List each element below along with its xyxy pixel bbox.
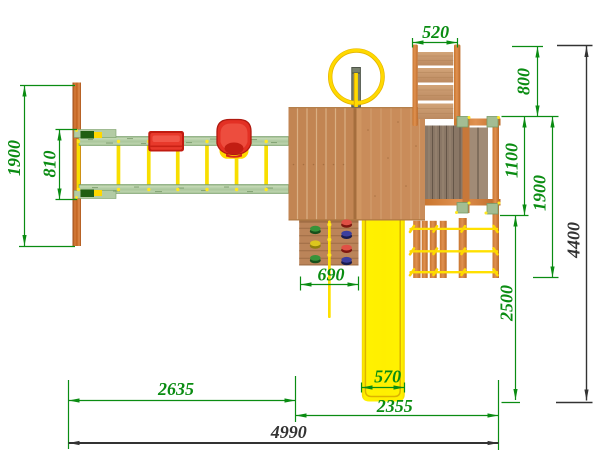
svg-text:800: 800 <box>514 68 534 95</box>
svg-text:1900: 1900 <box>4 140 24 176</box>
svg-text:2635: 2635 <box>157 379 194 399</box>
svg-text:520: 520 <box>422 22 449 42</box>
svg-text:570: 570 <box>374 367 401 387</box>
svg-text:2500: 2500 <box>497 285 517 322</box>
svg-text:810: 810 <box>40 151 60 178</box>
svg-text:690: 690 <box>318 265 345 285</box>
svg-text:4990: 4990 <box>270 422 307 442</box>
svg-text:4400: 4400 <box>564 222 584 259</box>
svg-text:2355: 2355 <box>376 396 413 416</box>
svg-text:1900: 1900 <box>530 175 550 211</box>
svg-text:1100: 1100 <box>502 143 522 178</box>
